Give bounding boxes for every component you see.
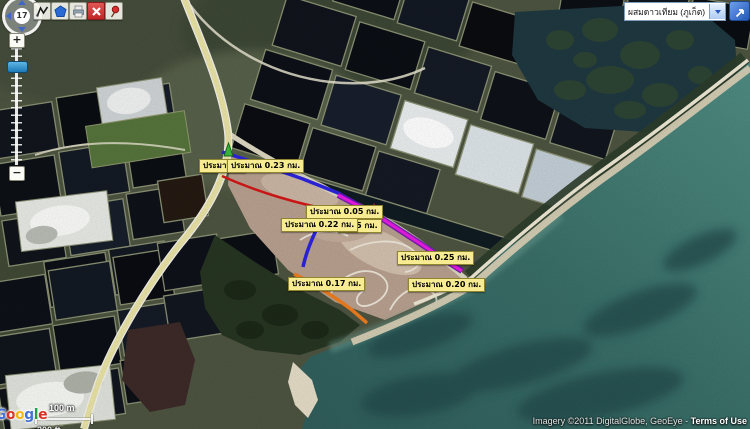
share-map-button[interactable] — [729, 1, 750, 21]
imagery-credit-text: Imagery ©2011 DigitalGlobe, GeoEye - — [533, 416, 691, 426]
measure-label-023: ประมาณ 0.23 กม. — [227, 159, 304, 173]
terms-of-use-link[interactable]: Terms of Use — [691, 416, 747, 426]
google-logo[interactable]: Google — [0, 407, 47, 423]
clear-measurement-button[interactable] — [87, 2, 105, 20]
scale-metric-label: 100 m — [49, 403, 93, 413]
measure-line-tool-button[interactable] — [33, 2, 51, 20]
clear-x-icon — [90, 5, 103, 18]
combo-dropdown-button[interactable] — [709, 4, 725, 19]
map-viewport[interactable]: ประมาณ 0 ประมาณ 0.23 กม. ประมาณ 0.05 กม.… — [0, 0, 750, 429]
measure-label-020: ประมาณ 0.20 กม. — [408, 278, 485, 292]
measure-label-017: ประมาณ 0.17 กม. — [288, 277, 365, 291]
measure-polyline-icon — [36, 5, 49, 18]
map-type-value: ผสมดาวเทียม (ภูเก็ต) — [625, 5, 709, 19]
imagery-attribution: Imagery ©2011 DigitalGlobe, GeoEye - Ter… — [533, 416, 747, 427]
marker-tool-button[interactable] — [105, 2, 123, 20]
pan-left-icon[interactable] — [6, 12, 11, 20]
pan-down-icon[interactable] — [18, 27, 26, 32]
measure-label-022: ประมาณ 0.22 กม. — [281, 218, 358, 232]
pan-up-icon[interactable] — [18, 0, 26, 5]
pushpin-icon — [108, 5, 121, 18]
map-type-select[interactable]: ผสมดาวเทียม (ภูเก็ต) — [624, 2, 726, 21]
zoom-out-button[interactable]: − — [9, 166, 25, 181]
zoom-in-button[interactable]: + — [9, 33, 25, 48]
chevron-down-icon — [715, 10, 721, 14]
measure-label-025: ประมาณ 0.25 กม. — [397, 251, 474, 265]
print-icon — [72, 5, 85, 18]
zoom-slider-handle[interactable] — [7, 61, 28, 73]
print-button[interactable] — [69, 2, 87, 20]
share-arrow-icon — [733, 5, 746, 18]
scale-imperial-label: 200 ft — [37, 425, 93, 429]
measure-label-005: ประมาณ 0.05 กม. — [306, 205, 383, 219]
measure-polygon-icon — [54, 5, 67, 18]
measure-area-tool-button[interactable] — [51, 2, 69, 20]
zoom-level-badge: 17 — [14, 8, 30, 24]
